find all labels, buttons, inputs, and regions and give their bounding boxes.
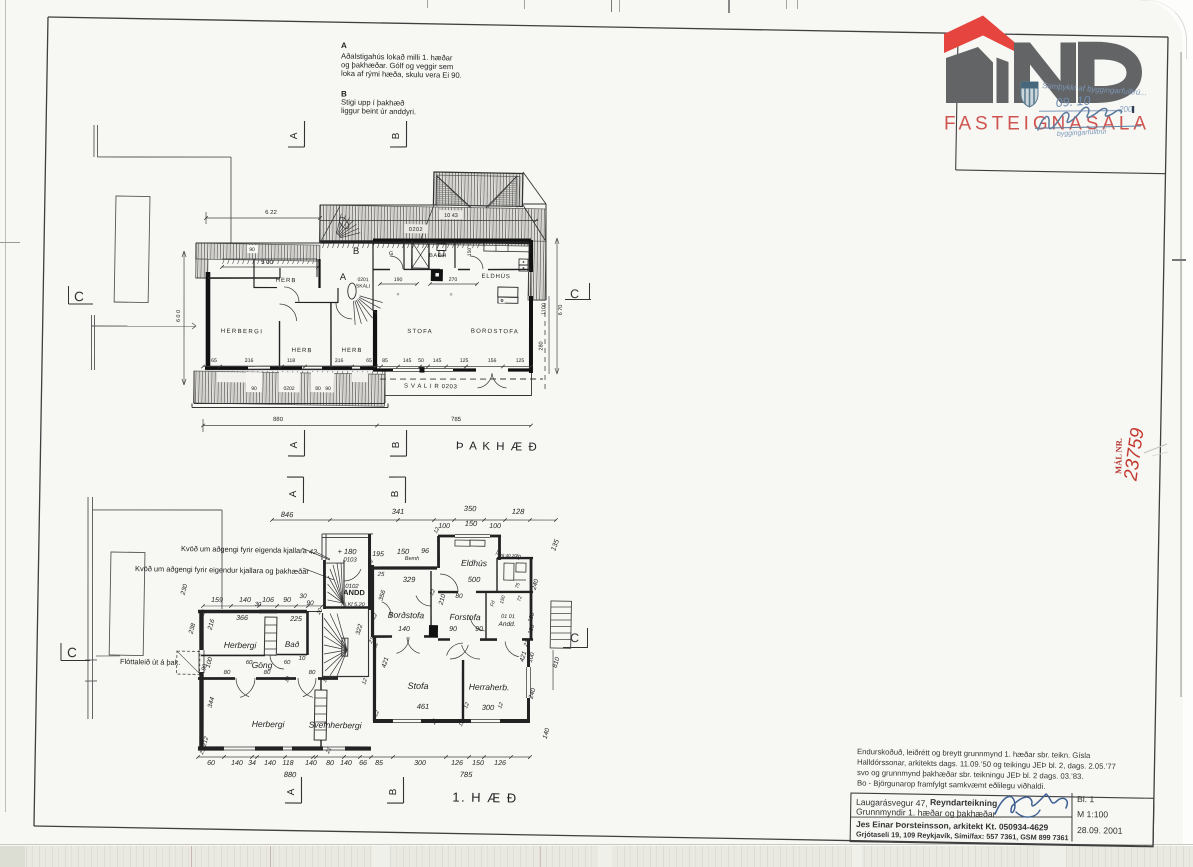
svg-text:A: A [289, 132, 300, 139]
svg-text:⌗: ⌗ [450, 292, 453, 298]
svg-text:Bemh: Bemh [405, 556, 419, 562]
svg-text:461: 461 [417, 702, 430, 711]
svg-text:75: 75 [514, 582, 521, 589]
svg-text:SKÁLI: SKÁLI [356, 282, 370, 289]
svg-text:Borðstofa: Borðstofa [388, 610, 425, 621]
svg-text:loka af rými hæða, skulu vera: loka af rými hæða, skulu vera Ei 90. [341, 69, 462, 80]
svg-text:A: A [340, 272, 347, 283]
svg-text:A: A [341, 41, 347, 50]
svg-text:Flóttaleið út á þak.: Flóttaleið út á þak. [120, 657, 181, 667]
svg-text:125: 125 [460, 358, 469, 364]
svg-text:Bo - Björgunarop framfylgt sam: Bo - Björgunarop framfylgt samkvæmt eðli… [857, 779, 1046, 791]
svg-text:316: 316 [245, 358, 254, 364]
svg-text:21: 21 [325, 747, 334, 756]
svg-text:80: 80 [315, 386, 321, 392]
svg-text:Bað: Bað [285, 640, 300, 649]
svg-text:140: 140 [398, 626, 410, 633]
svg-text:Kvöð um aðgengi fyrir eigenda: Kvöð um aðgengi fyrir eigenda kjallara [181, 544, 308, 555]
svg-text:ELDHÚS: ELDHÚS [481, 273, 510, 281]
svg-text:421: 421 [381, 656, 391, 669]
svg-text:145: 145 [433, 358, 442, 364]
svg-text:125: 125 [516, 358, 525, 364]
svg-text:HERB: HERB [276, 278, 297, 284]
svg-text:5 00: 5 00 [261, 260, 273, 266]
svg-text:Herbergi: Herbergi [224, 640, 258, 651]
svg-text:785: 785 [451, 417, 462, 423]
svg-text:238: 238 [187, 622, 197, 636]
svg-text:145: 145 [403, 358, 412, 364]
svg-text:12: 12 [497, 702, 505, 710]
svg-text:25: 25 [377, 572, 385, 578]
svg-text:B: B [388, 788, 399, 795]
svg-text:118: 118 [287, 358, 295, 364]
svg-text:42: 42 [309, 549, 317, 556]
svg-text:159: 159 [211, 597, 223, 604]
svg-text:21: 21 [431, 717, 440, 726]
svg-text:210: 210 [437, 593, 447, 607]
svg-text:366: 366 [236, 615, 248, 622]
svg-text:280: 280 [538, 341, 544, 350]
svg-text:150: 150 [397, 547, 410, 556]
svg-text:230: 230 [179, 583, 189, 597]
svg-text:100: 100 [528, 611, 537, 623]
svg-text:Forstofa: Forstofa [449, 612, 481, 623]
svg-text:80: 80 [326, 760, 334, 767]
svg-text:150: 150 [465, 519, 478, 528]
svg-text:90: 90 [325, 386, 331, 392]
svg-text:12: 12 [361, 678, 369, 686]
svg-text:Herbergi: Herbergi [252, 719, 286, 730]
svg-text:0201: 0201 [357, 277, 368, 283]
svg-text:140: 140 [542, 727, 552, 740]
svg-text:85: 85 [375, 760, 383, 767]
svg-text:BOROSTOFA: BOROSTOFA [471, 329, 519, 336]
svg-text:1100: 1100 [541, 303, 547, 315]
svg-text:Andd.: Andd. [498, 621, 516, 628]
svg-text:240: 240 [527, 687, 537, 701]
svg-text:150: 150 [467, 248, 473, 257]
svg-text:byggingarfulltrúi: byggingarfulltrúi [1057, 128, 1107, 138]
svg-text:Eldhús: Eldhús [461, 558, 488, 568]
svg-text:+ 180: + 180 [337, 547, 357, 556]
svg-text:100: 100 [489, 523, 501, 530]
svg-text:106: 106 [262, 597, 274, 604]
svg-text:12: 12 [284, 676, 292, 684]
svg-text:126: 126 [451, 760, 463, 767]
svg-text:Herraherb.: Herraherb. [469, 682, 510, 693]
svg-text:225: 225 [289, 616, 302, 623]
svg-text:785: 785 [460, 770, 473, 779]
svg-text:80: 80 [309, 670, 316, 676]
svg-text:A: A [288, 490, 299, 497]
svg-text:0202: 0202 [283, 386, 294, 392]
svg-text:S V A L I R 0203: S V A L I R 0203 [404, 383, 458, 390]
svg-text:HERB: HERB [342, 348, 363, 354]
svg-text:880: 880 [284, 770, 297, 779]
svg-text:C: C [67, 645, 77, 660]
svg-text:72: 72 [516, 595, 523, 602]
svg-text:140: 140 [264, 760, 276, 767]
svg-text:Bl. 1: Bl. 1 [1077, 794, 1095, 804]
svg-text:126: 126 [494, 760, 506, 767]
svg-text:135: 135 [550, 539, 561, 553]
svg-text:50: 50 [418, 358, 424, 364]
svg-text:Svefnherbergi: Svefnherbergi [309, 720, 363, 731]
svg-text:140: 140 [305, 760, 317, 767]
svg-text:HERBERGI: HERBERGI [221, 329, 264, 336]
svg-text:128: 128 [512, 507, 525, 516]
svg-text:90: 90 [251, 386, 257, 392]
svg-text:150: 150 [499, 595, 507, 605]
svg-text:195: 195 [372, 551, 384, 558]
svg-text:30: 30 [255, 602, 262, 608]
svg-text:216: 216 [206, 618, 216, 632]
svg-text:6 0 0: 6 0 0 [176, 310, 182, 322]
svg-text:C: C [74, 289, 84, 304]
svg-text:A: A [289, 441, 300, 448]
svg-text:B: B [390, 490, 401, 497]
svg-text:140: 140 [340, 760, 352, 767]
svg-text:118: 118 [282, 760, 293, 767]
svg-text:270: 270 [449, 277, 458, 283]
svg-text:344: 344 [207, 696, 217, 709]
svg-text:66: 66 [359, 760, 367, 767]
svg-text:12: 12 [429, 589, 437, 597]
svg-text:Göng: Göng [252, 660, 273, 670]
svg-text:liggur beint úr anddyri.: liggur beint úr anddyri. [341, 106, 416, 116]
svg-text:B: B [391, 441, 402, 448]
svg-text:880: 880 [273, 417, 284, 423]
svg-text:Kvöð um aðgengi fyrir eigendur: Kvöð um aðgengi fyrir eigendur kjallara … [135, 564, 309, 576]
svg-text:A: A [286, 788, 297, 795]
svg-text:12: 12 [463, 702, 471, 710]
svg-text:96: 96 [421, 548, 429, 555]
svg-text:500: 500 [468, 575, 481, 584]
svg-text:Kj.Kl 5.20: Kj.Kl 5.20 [341, 602, 366, 608]
svg-text:80: 80 [224, 670, 231, 676]
svg-text:341: 341 [392, 507, 405, 516]
svg-text:10: 10 [299, 656, 306, 662]
svg-text:0103: 0103 [343, 557, 357, 563]
svg-text:Stofa: Stofa [407, 681, 428, 691]
svg-text:316: 316 [335, 358, 344, 364]
svg-text:10 43: 10 43 [444, 213, 458, 219]
svg-text:60: 60 [284, 660, 291, 666]
svg-text:STOFA: STOFA [407, 329, 433, 335]
svg-text:⌗: ⌗ [397, 292, 400, 298]
svg-text:322: 322 [355, 623, 365, 636]
svg-text:12: 12 [371, 613, 379, 621]
svg-text:6 70: 6 70 [558, 305, 564, 316]
svg-text:85: 85 [382, 358, 388, 364]
svg-text:329: 329 [403, 575, 416, 584]
svg-text:90: 90 [249, 247, 255, 253]
svg-text:Fd: Fd [489, 600, 496, 607]
svg-text:B: B [391, 132, 402, 139]
svg-text:0202: 0202 [409, 227, 423, 233]
svg-text:34: 34 [248, 760, 256, 767]
svg-text:HERB: HERB [292, 348, 313, 354]
svg-text:90: 90 [449, 626, 457, 633]
svg-text:60: 60 [246, 660, 253, 666]
svg-text:12: 12 [373, 710, 381, 718]
svg-text:80: 80 [264, 670, 271, 676]
svg-text:300: 300 [414, 760, 426, 767]
svg-text:90: 90 [306, 600, 314, 607]
svg-text:156: 156 [488, 358, 497, 364]
svg-text:140: 140 [231, 760, 243, 767]
svg-text:Þ A K H Æ Ð: Þ A K H Æ Ð [456, 440, 539, 453]
svg-text:846: 846 [281, 510, 294, 519]
svg-text:60: 60 [207, 760, 215, 767]
svg-text:90: 90 [475, 626, 483, 633]
svg-text:140: 140 [239, 597, 251, 604]
svg-text:65: 65 [211, 358, 217, 364]
svg-text:190: 190 [394, 277, 403, 283]
svg-text:0102: 0102 [345, 584, 359, 590]
svg-text:01 01: 01 01 [501, 614, 515, 620]
svg-text:B: B [353, 246, 360, 257]
svg-text:1. H Æ Ð: 1. H Æ Ð [452, 789, 518, 805]
svg-text:300: 300 [482, 703, 495, 712]
svg-text:80: 80 [455, 593, 463, 600]
svg-text:90: 90 [283, 597, 291, 604]
svg-text:65: 65 [366, 358, 372, 364]
svg-text:Reyndarteikning: Reyndarteikning [930, 797, 998, 808]
svg-text:350: 350 [464, 504, 477, 513]
svg-text:28.09. 2001: 28.09. 2001 [1077, 825, 1123, 836]
svg-text:100: 100 [528, 623, 537, 635]
svg-text:356: 356 [378, 589, 388, 602]
svg-text:G: G [389, 251, 393, 257]
svg-text:23759: 23759 [1120, 426, 1148, 483]
svg-text:M 1:100: M 1:100 [1077, 809, 1108, 820]
svg-text:150: 150 [472, 760, 484, 767]
svg-text:BAÐH: BAÐH [429, 253, 447, 259]
svg-text:6 22: 6 22 [265, 210, 277, 216]
